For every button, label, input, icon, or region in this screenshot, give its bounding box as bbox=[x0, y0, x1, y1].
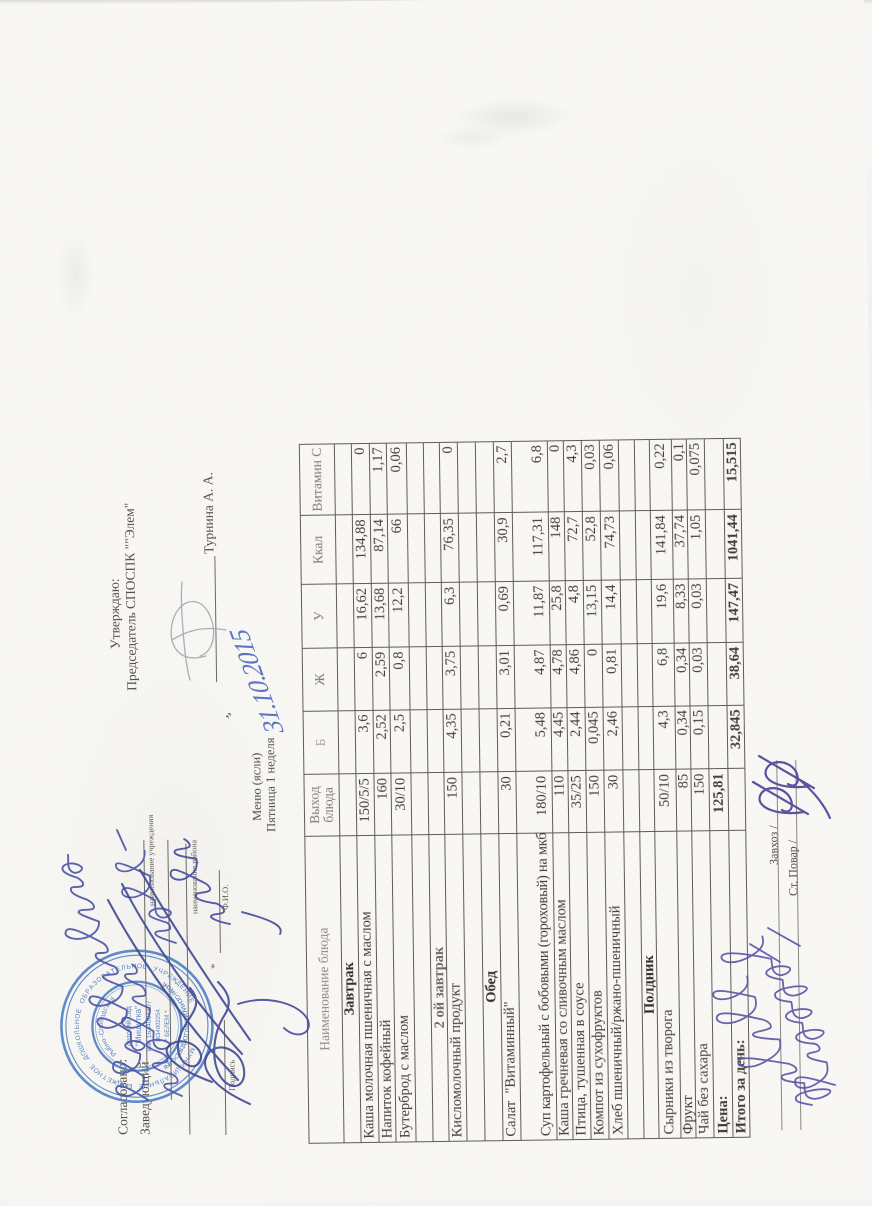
svg-text:31.10.2015: 31.10.2015 bbox=[223, 628, 291, 735]
